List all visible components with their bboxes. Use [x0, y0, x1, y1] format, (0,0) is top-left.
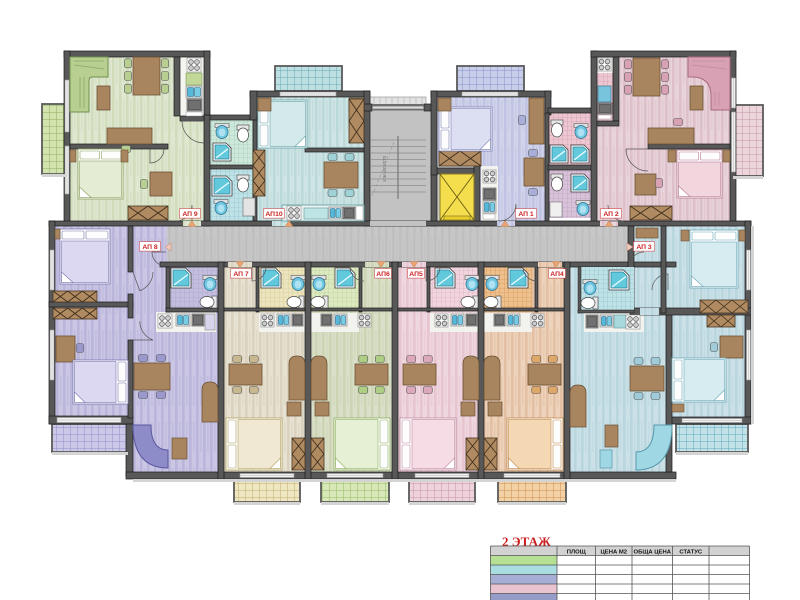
svg-text:АП4: АП4	[550, 271, 564, 278]
svg-text:АП6: АП6	[376, 271, 390, 278]
svg-text:СТАТУС: СТАТУС	[679, 550, 703, 556]
svg-text:АП10: АП10	[265, 211, 282, 218]
svg-text:У.Эл.45.67/70: У.Эл.45.67/70	[382, 155, 387, 182]
svg-text:ОБЩА ЦЕНА: ОБЩА ЦЕНА	[634, 550, 672, 556]
svg-text:АП 1: АП 1	[518, 211, 534, 218]
svg-text:АП5: АП5	[409, 271, 423, 278]
svg-text:АП 7: АП 7	[233, 271, 249, 278]
svg-text:АП 8: АП 8	[142, 244, 158, 251]
svg-text:ПЛОЩ: ПЛОЩ	[567, 550, 586, 556]
svg-text:АП 3: АП 3	[636, 244, 652, 251]
svg-text:ЦЕНА М2: ЦЕНА М2	[600, 550, 627, 556]
svg-text:АП 2: АП 2	[603, 211, 619, 218]
svg-text:АП 9: АП 9	[182, 211, 198, 218]
